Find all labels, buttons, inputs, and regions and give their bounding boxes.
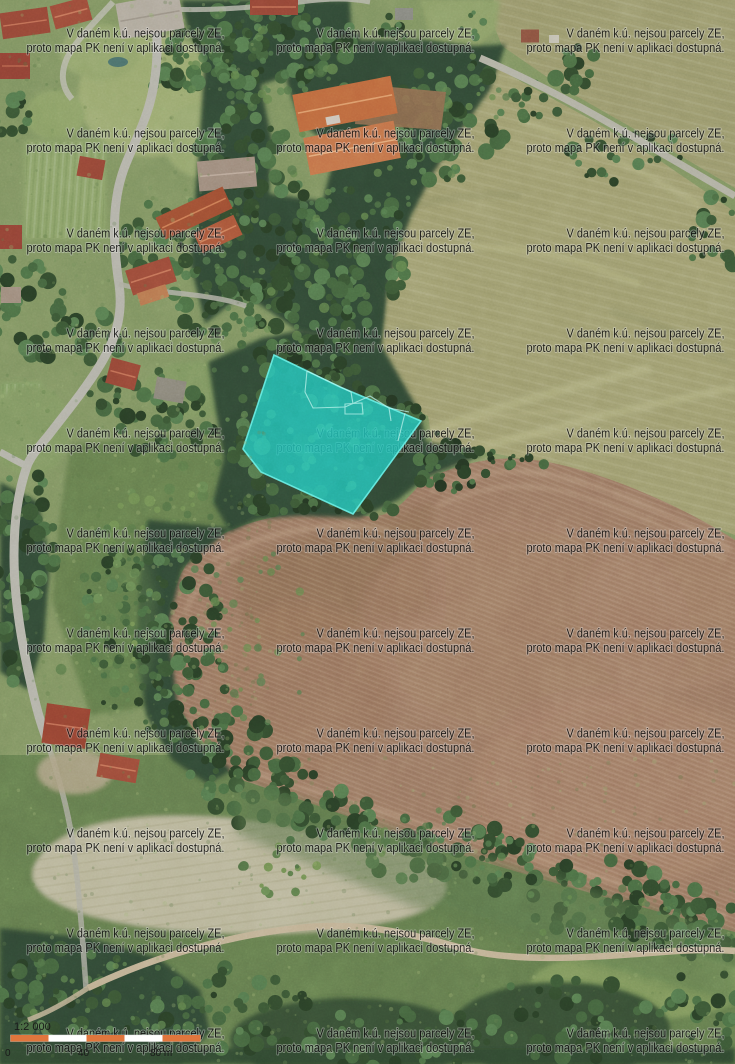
svg-text:80 m: 80 m (150, 1048, 172, 1059)
svg-text:0: 0 (5, 1048, 11, 1059)
svg-text:40: 40 (78, 1048, 90, 1059)
svg-text:1:2 000: 1:2 000 (14, 1021, 51, 1033)
